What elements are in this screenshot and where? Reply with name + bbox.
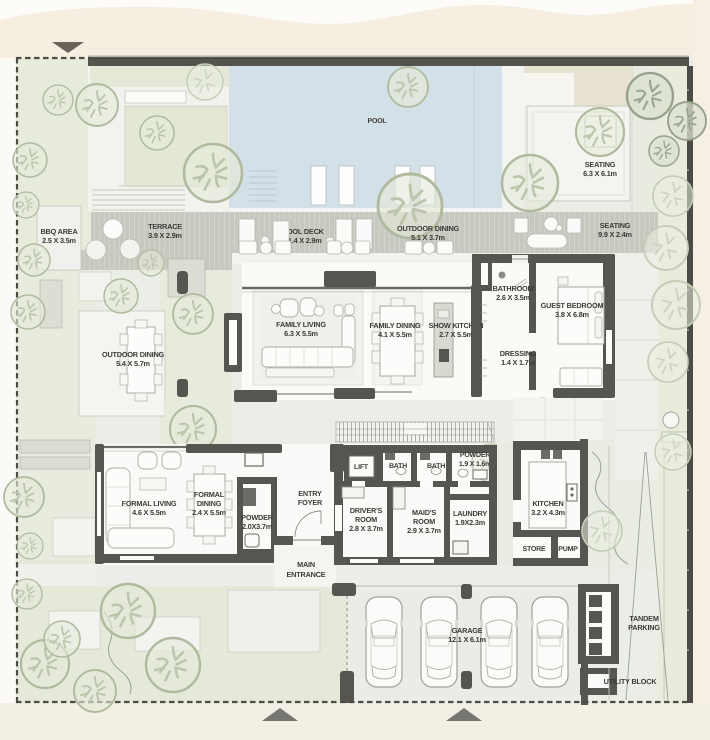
svg-text:DINING: DINING <box>197 499 222 508</box>
svg-text:ROOM: ROOM <box>355 515 377 524</box>
svg-text:6.3 X 5.5m: 6.3 X 5.5m <box>284 329 318 338</box>
svg-text:TERRACE: TERRACE <box>148 222 182 231</box>
svg-text:DRESSING: DRESSING <box>500 349 537 358</box>
svg-text:2.6 X 3.5m: 2.6 X 3.5m <box>496 293 530 302</box>
svg-text:POWDER: POWDER <box>241 513 274 522</box>
svg-text:2.0X3.7m: 2.0X3.7m <box>242 522 273 531</box>
svg-text:UTILITY BLOCK: UTILITY BLOCK <box>604 677 658 686</box>
svg-text:MAID'S: MAID'S <box>412 508 436 517</box>
svg-text:1.4 X 1.7m: 1.4 X 1.7m <box>501 358 535 367</box>
svg-text:6.3 X 6.1m: 6.3 X 6.1m <box>583 169 617 178</box>
svg-text:GUEST BEDROOM: GUEST BEDROOM <box>541 301 604 310</box>
svg-text:ROOM: ROOM <box>413 517 435 526</box>
svg-text:FAMILY DINING: FAMILY DINING <box>370 321 421 330</box>
svg-text:2.5 X 3.5m: 2.5 X 3.5m <box>42 236 76 245</box>
svg-text:LAUNDRY: LAUNDRY <box>453 509 487 518</box>
svg-text:BATHROOM: BATHROOM <box>493 284 534 293</box>
svg-text:STORE: STORE <box>523 546 547 553</box>
svg-text:POWDER: POWDER <box>460 452 490 459</box>
svg-text:SEATING: SEATING <box>585 160 616 169</box>
svg-text:PUMP: PUMP <box>558 546 578 553</box>
svg-text:2.7 X 5.5m: 2.7 X 5.5m <box>439 330 473 339</box>
svg-text:MAIN: MAIN <box>297 560 315 569</box>
svg-text:2.4 X 5.5m: 2.4 X 5.5m <box>192 508 226 517</box>
svg-text:LIFT: LIFT <box>354 464 369 471</box>
svg-text:FORMAL: FORMAL <box>194 490 225 499</box>
svg-text:2.9 X 3.7m: 2.9 X 3.7m <box>407 526 441 535</box>
svg-text:BBQ AREA: BBQ AREA <box>40 227 78 236</box>
svg-text:OUTDOOR DINING: OUTDOOR DINING <box>397 224 460 233</box>
svg-text:FAMILY LIVING: FAMILY LIVING <box>276 320 326 329</box>
svg-text:DRIVER'S: DRIVER'S <box>350 506 383 515</box>
svg-text:3.8 X 6.8m: 3.8 X 6.8m <box>555 310 589 319</box>
svg-text:FOYER: FOYER <box>298 498 323 507</box>
svg-text:1.9X2.3m: 1.9X2.3m <box>455 518 486 527</box>
svg-text:5.4 X 5.7m: 5.4 X 5.7m <box>116 359 150 368</box>
svg-text:3.9 X 2.9m: 3.9 X 2.9m <box>148 231 182 240</box>
svg-text:9.9 X 2.4m: 9.9 X 2.4m <box>598 230 632 239</box>
svg-text:POOL: POOL <box>367 118 387 125</box>
svg-text:2.8 X 3.7m: 2.8 X 3.7m <box>349 524 383 533</box>
svg-text:GARAGE: GARAGE <box>452 626 483 635</box>
svg-text:12.1 X 6.1m: 12.1 X 6.1m <box>448 635 486 644</box>
svg-text:4.1 X 5.5m: 4.1 X 5.5m <box>378 330 412 339</box>
svg-text:BATH: BATH <box>389 463 407 470</box>
svg-text:KITCHEN: KITCHEN <box>532 499 563 508</box>
svg-text:1.9 X 1.6m: 1.9 X 1.6m <box>459 461 491 468</box>
svg-text:OUTDOOR DINING: OUTDOOR DINING <box>102 350 165 359</box>
svg-text:TANDEM: TANDEM <box>629 614 659 623</box>
svg-text:PARKING: PARKING <box>628 623 660 632</box>
svg-text:FORMAL LIVING: FORMAL LIVING <box>122 499 177 508</box>
svg-text:4.6 X 5.5m: 4.6 X 5.5m <box>132 508 166 517</box>
svg-text:ENTRANCE: ENTRANCE <box>287 570 326 579</box>
svg-text:ENTRY: ENTRY <box>298 489 322 498</box>
svg-text:SEATING: SEATING <box>600 221 631 230</box>
svg-text:BATH: BATH <box>427 463 445 470</box>
svg-text:3.2 X 4.3m: 3.2 X 4.3m <box>531 508 565 517</box>
